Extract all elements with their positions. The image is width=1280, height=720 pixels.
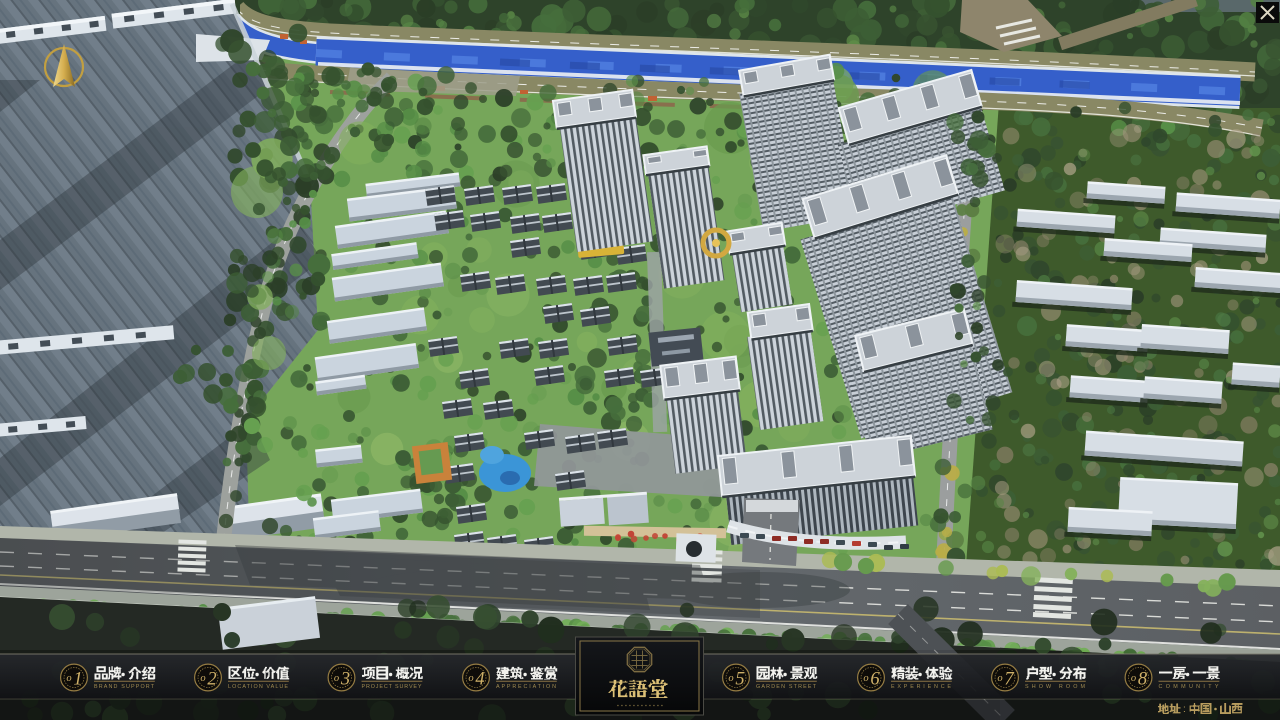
svg-text:o: o bbox=[1131, 673, 1136, 684]
svg-text:2: 2 bbox=[207, 670, 216, 690]
svg-text:o: o bbox=[863, 673, 868, 684]
svg-text:LOCATION VALUE: LOCATION VALUE bbox=[228, 684, 288, 690]
svg-text:o: o bbox=[728, 673, 733, 684]
svg-text:7: 7 bbox=[1004, 670, 1014, 690]
svg-text:5: 5 bbox=[735, 670, 744, 690]
svg-text:SHOW ROOM: SHOW ROOM bbox=[1025, 684, 1086, 690]
svg-text:APPRECIATION: APPRECIATION bbox=[496, 684, 556, 690]
svg-text:PROJECT SURVEY: PROJECT SURVEY bbox=[362, 684, 422, 690]
svg-text:o: o bbox=[468, 673, 473, 684]
svg-text:o: o bbox=[66, 673, 71, 684]
svg-text:4: 4 bbox=[475, 670, 484, 690]
svg-text:o: o bbox=[200, 673, 205, 684]
svg-text:6: 6 bbox=[870, 670, 880, 690]
svg-text:3: 3 bbox=[340, 670, 350, 690]
svg-text:o: o bbox=[334, 673, 339, 684]
svg-text:BRAND SUPPORT: BRAND SUPPORT bbox=[94, 684, 155, 690]
svg-text:8: 8 bbox=[1138, 670, 1148, 690]
svg-text::: : bbox=[1183, 704, 1186, 715]
svg-text:COMMUNITY: COMMUNITY bbox=[1159, 684, 1219, 690]
svg-text:o: o bbox=[997, 673, 1002, 684]
svg-text:1: 1 bbox=[73, 670, 82, 690]
